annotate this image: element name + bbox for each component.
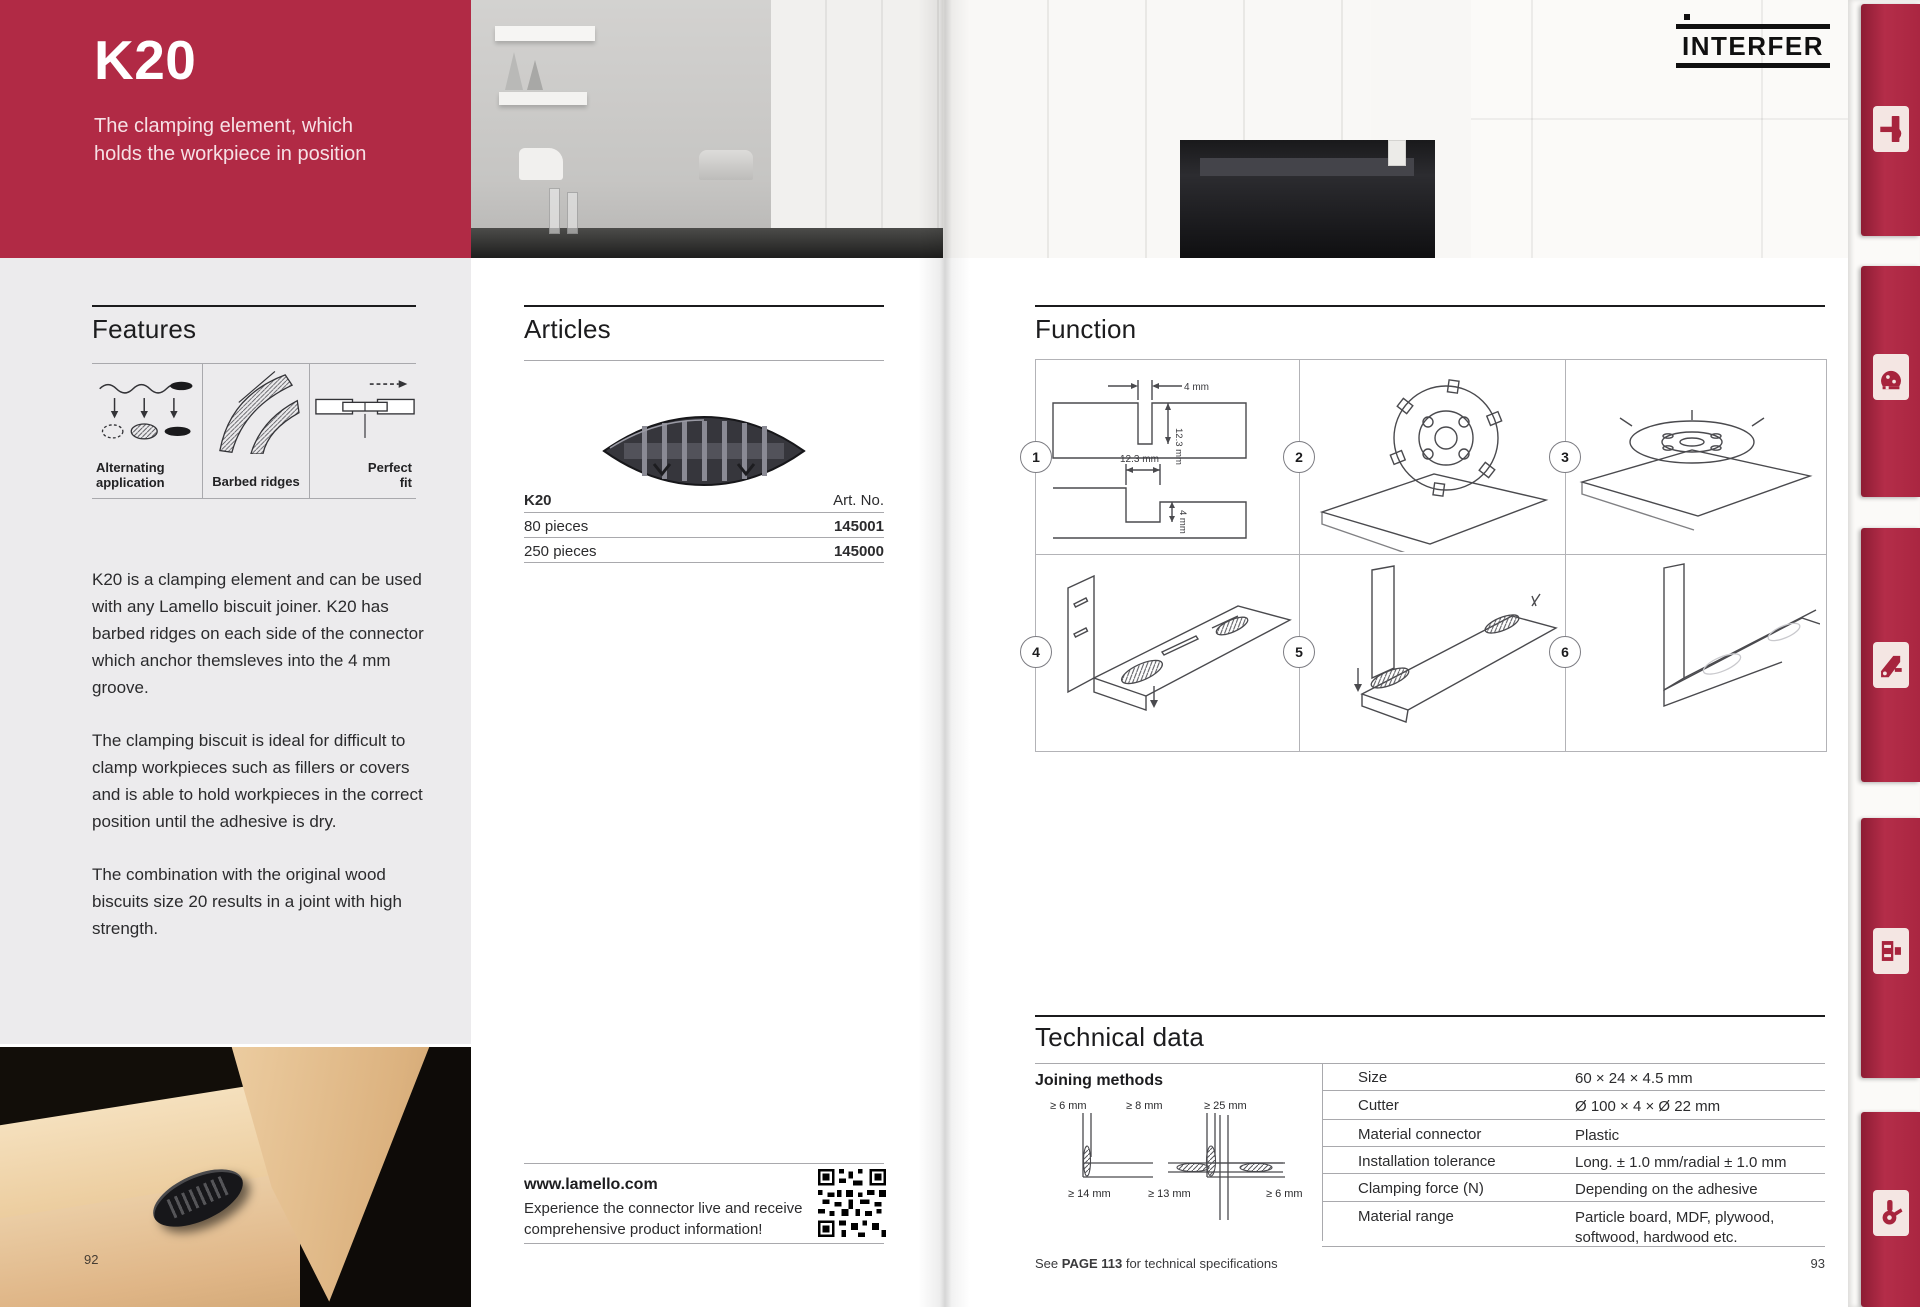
page-gutter [918,0,970,1307]
sidebar-tab-1 [1861,4,1920,236]
spec-row: Clamping force (N) Depending on the adhe… [1322,1174,1825,1202]
features-heading: Features [92,314,196,345]
paragraph: K20 is a clamping element and can be use… [92,566,424,701]
bracket-fitting-tab-icon [1878,648,1904,682]
joining-methods-diagrams: ≥ 6 mm ≥ 14 mm ≥ 8 mm ≥ 13 mm ≥ 25 mm ≥ … [1038,1095,1323,1235]
paragraph: The combination with the original wood b… [92,861,424,942]
features-rule [92,305,416,307]
cabinet-connector-tab-icon [1878,934,1904,968]
weblink-text: Experience the connector live and receiv… [524,1200,803,1217]
spec-row: Material connector Plastic [1322,1120,1825,1147]
step-number: 1 [1020,441,1052,473]
spec-row: Cutter Ø 100 × 4 × Ø 22 mm [1322,1091,1825,1120]
step-number: 2 [1283,441,1315,473]
function-heading: Function [1035,314,1136,345]
kitchen-shelf [499,92,587,105]
step-number: 4 [1020,636,1052,668]
spec-value: Particle board, MDF, plywood, softwood, … [1575,1208,1823,1248]
spec-label: Clamping force (N) [1358,1180,1484,1197]
spec-label: Size [1358,1069,1387,1086]
sidebar-tab-5 [1861,1112,1920,1307]
spec-value: Ø 100 × 4 × Ø 22 mm [1575,1097,1823,1117]
technical-rule [1035,1015,1825,1017]
spec-label: Cutter [1358,1097,1399,1114]
toaster [699,150,753,180]
sidebar-tab-4 [1861,818,1920,1078]
spec-label: Installation tolerance [1358,1153,1496,1170]
alternating-application-icon [96,372,198,450]
table-line [524,512,884,513]
logo-text: INTERFER [1676,24,1830,68]
page-subtitle: The clamping element, which holds the wo… [94,112,394,168]
round-connector-tab-icon [1878,360,1904,394]
technical-heading: Technical data [1035,1022,1204,1053]
feature-label: Alternating application [96,460,165,490]
spec-value: 60 × 24 × 4.5 mm [1575,1069,1823,1089]
article-row-pieces: 80 pieces [524,518,588,535]
svg-text:≥ 6 mm: ≥ 6 mm [1266,1188,1303,1200]
decor-cone [527,60,543,90]
spec-value: Depending on the adhesive [1575,1180,1823,1200]
svg-text:≥ 6 mm: ≥ 6 mm [1050,1100,1087,1112]
website-link[interactable]: www.lamello.com [524,1176,658,1194]
svg-text:≥ 25 mm: ≥ 25 mm [1204,1100,1247,1112]
articles-rule [524,305,884,307]
function-diagram-insert-biscuits [1042,560,1294,746]
page-title: K20 [94,28,196,92]
step-number: 3 [1549,441,1581,473]
function-diagram-cutter [1306,364,1558,552]
wood-joint-photo: 92 [0,1047,471,1307]
weblink-line [524,1243,884,1244]
spec-value: Long. ± 1.0 mm/radial ± 1.0 mm [1575,1153,1823,1173]
spec-label: Material range [1358,1208,1454,1225]
description-text: K20 is a clamping element and can be use… [92,566,424,968]
spec-row: Size 60 × 24 × 4.5 mm [1322,1063,1825,1091]
spec-row: Installation tolerance Long. ± 1.0 mm/ra… [1322,1147,1825,1174]
oven-display [1200,158,1414,176]
function-diagram-finished-joint [1572,560,1820,746]
left-page-number: 92 [84,1252,98,1267]
footer-note-prefix: See [1035,1256,1062,1271]
paragraph: The clamping biscuit is ideal for diffic… [92,727,424,835]
table-line [524,562,884,563]
features-strip: Alternating application Barbed ridges Pe… [92,363,416,499]
article-row-pieces: 250 pieces [524,543,597,560]
tab-icon-plate [1873,642,1909,688]
glass [549,188,560,234]
logo-dot [1684,14,1690,20]
footer-note: See PAGE 113 for technical specification… [1035,1256,1278,1271]
svg-text:≥ 13 mm: ≥ 13 mm [1148,1188,1191,1200]
kitchen-shelf [495,26,595,41]
glass [567,192,578,234]
hinge-tab-icon [1878,112,1904,146]
knob-fitting-tab-icon [1878,1196,1904,1230]
article-product-name: K20 [524,492,552,509]
step-number: 6 [1549,636,1581,668]
svg-text:≥ 14 mm: ≥ 14 mm [1068,1188,1111,1200]
footer-note-page-ref: PAGE 113 [1062,1256,1122,1271]
svg-text:4 mm: 4 mm [1177,510,1188,534]
qr-code [818,1169,886,1237]
right-page-number: 93 [1765,1256,1825,1271]
title-banner: K20 The clamping element, which holds th… [0,0,471,258]
weblink-line [524,1163,884,1164]
tab-icon-plate [1873,928,1909,974]
function-diagram-assembly [1306,560,1558,746]
catalog-spread: K20 The clamping element, which holds th… [0,0,1920,1307]
spec-label: Material connector [1358,1126,1481,1143]
function-rule [1035,305,1825,307]
kitchen-photo [471,0,1850,258]
perfect-fit-icon [314,372,416,450]
article-row-artno: 145000 [724,543,884,560]
grid-line [1565,360,1566,751]
countertop [471,228,943,258]
step-number: 5 [1283,636,1315,668]
spec-row: Material range Particle board, MDF, plyw… [1322,1202,1825,1247]
k20-product-image [594,412,814,490]
sidebar-tab-3 [1861,528,1920,782]
kettle [519,148,563,180]
footer-note-suffix: for technical specifications [1122,1256,1277,1271]
function-grid: 4 mm 12.3 mm 12.3 mm 4 mm [1035,359,1827,752]
weblink-text: comprehensive product information! [524,1221,762,1238]
door-frame-line [1471,118,1850,120]
articles-rule-thin [524,360,884,361]
article-row-artno: 145001 [724,518,884,535]
table-line [524,537,884,538]
decor-cone [505,52,523,90]
feature-label: Perfect fit [310,460,412,490]
function-diagram-cutter-flat [1572,364,1820,552]
tab-icon-plate [1873,354,1909,400]
svg-text:4 mm: 4 mm [1184,382,1209,393]
grid-line [1299,360,1300,751]
function-diagram-groove-dimensions: 4 mm 12.3 mm 12.3 mm 4 mm [1048,370,1288,546]
sidebar-tab-2 [1861,266,1920,497]
tab-icon-plate [1873,1190,1909,1236]
barbed-ridges-icon [208,368,304,454]
joining-methods-heading: Joining methods [1035,1072,1163,1090]
art-no-header: Art. No. [724,492,884,509]
articles-heading: Articles [524,314,611,345]
brand-logo: INTERFER [1676,24,1830,68]
feature-label: Barbed ridges [203,474,309,489]
svg-text:≥ 8 mm: ≥ 8 mm [1126,1100,1163,1112]
svg-text:12.3 mm: 12.3 mm [1173,428,1184,465]
light-switch [1388,140,1406,166]
door-frame-line [1531,0,1533,258]
svg-text:12.3 mm: 12.3 mm [1120,454,1159,465]
grid-line [1036,554,1826,555]
tab-icon-plate [1873,106,1909,152]
spec-value: Plastic [1575,1126,1823,1146]
spec-table: Size 60 × 24 × 4.5 mm Cutter Ø 100 × 4 ×… [1322,1063,1825,1247]
